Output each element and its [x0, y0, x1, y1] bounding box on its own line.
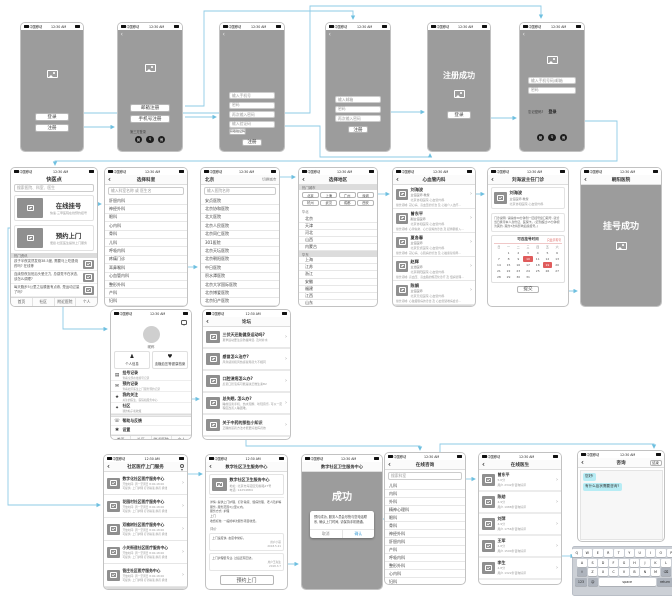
consult-doctor-item[interactable]: 曾东平5.0分用户·2342条咨询好评 ›	[479, 470, 561, 492]
battery-icon	[89, 170, 95, 173]
consult-doctor-item[interactable]: 刘萍4.9分用户·1756条咨询好评 ›	[479, 514, 561, 536]
chevron-right-icon: ›	[182, 503, 184, 509]
battery-icon	[576, 25, 582, 28]
tab-item[interactable]: 个人	[76, 298, 97, 306]
back-icon[interactable]: ‹	[388, 461, 391, 468]
return-key[interactable]: return	[657, 578, 672, 586]
signal-icon	[396, 170, 401, 172]
province-item[interactable]: 河北	[299, 230, 377, 237]
battery-icon	[279, 457, 285, 460]
image-icon	[485, 477, 492, 483]
department-item[interactable]: 呼吸内科	[385, 554, 465, 562]
calendar-day[interactable]: 31	[523, 274, 533, 280]
image-icon	[210, 356, 217, 362]
department-item[interactable]: 耳鼻喉科	[105, 264, 187, 272]
calendar-day[interactable]: 28	[494, 274, 504, 280]
consult-doctor-item[interactable]: 李生4.8分用户·1322条咨询好评 ›	[479, 558, 561, 580]
province-item[interactable]: 安徽	[299, 279, 377, 286]
community-center-item[interactable]: 花园村社区医疗服务中心开放时间: 周一至周日 8:00-18:00可提供: 上门…	[104, 495, 187, 518]
phone-register-button[interactable]: 手机号注册	[130, 115, 170, 123]
login-button[interactable]: 登录	[35, 113, 69, 121]
hospital-item[interactable]: 北京天坛医院	[201, 247, 279, 255]
letter-key[interactable]: O	[656, 549, 666, 557]
emoji-key[interactable]: ☺	[588, 578, 598, 586]
chevron-right-icon: ›	[556, 521, 558, 527]
letter-key[interactable]: M	[651, 568, 661, 576]
consult-doctor-item[interactable]: 王军4.8分用户·1590条咨询好评 ›	[479, 536, 561, 558]
search-input[interactable]: 输入医院名称	[204, 187, 276, 195]
bottom-tab-bar: 首页社区附近医院个人	[111, 435, 191, 439]
letter-key[interactable]: I	[646, 549, 656, 557]
battery-icon	[276, 25, 282, 28]
menu-item[interactable]: ▤ 挂号记录查看全部在线挂号记录	[111, 370, 191, 381]
signal-icon	[209, 457, 214, 459]
hospital-item[interactable]: 中日医院	[201, 264, 279, 272]
password-input[interactable]: 密码	[528, 87, 576, 94]
battery-icon	[75, 25, 81, 28]
back-icon[interactable]: ‹	[302, 176, 305, 183]
status-bar: 中国移动12:30 AM	[21, 23, 83, 30]
messages-icon[interactable]	[181, 320, 187, 325]
post-image-placeholder	[206, 419, 220, 431]
department-item[interactable]: 妇科	[385, 578, 465, 584]
filter-available-link[interactable]: 只显示有号	[547, 238, 561, 242]
image-icon	[110, 572, 117, 578]
profile-menu: ▤ 挂号记录查看全部在线挂号记录 ✉ 预约记录查看社区医生上门服务预约记录 ★ …	[111, 370, 191, 414]
page-title: 咨询	[616, 460, 625, 466]
app-title: 快医点	[11, 175, 97, 184]
success-image-placeholder-icon	[454, 90, 465, 98]
region-group-east-list: 上海江苏浙江安徽福建江西山东	[299, 257, 377, 306]
image-icon	[399, 239, 406, 245]
chevron-right-icon: ›	[470, 263, 472, 269]
review-item: 上门护理很专业, 过后还有回访。 用户王先生2018.3.7	[209, 553, 284, 572]
department-item[interactable]: 骨科	[385, 522, 465, 530]
letter-key[interactable]: D	[598, 559, 608, 567]
signal-icon	[204, 170, 209, 172]
signal-icon	[388, 455, 393, 457]
department-item[interactable]: 神经外科	[385, 530, 465, 538]
screen-doctor-list: 中国移动12:30 AM ‹心血管内科 刘海波主任医师 教授北京协和医院 心血管…	[392, 167, 476, 307]
register-submit-button[interactable]: 注册	[242, 139, 262, 146]
letter-key[interactable]: R	[604, 549, 614, 557]
image-icon	[210, 334, 217, 340]
doctor-photo-placeholder	[482, 496, 495, 508]
department-item[interactable]: 疼痛门诊	[105, 256, 187, 264]
screen-community-success: 中国移动12:30 AM 数字社区卫生服务中心 成功 预约成功, 服务人员会尽快…	[301, 454, 383, 590]
chevron-right-icon: ›	[556, 477, 558, 483]
cancel-button[interactable]: 取消	[310, 530, 342, 538]
menu-item[interactable]: ✉ 预约记录查看社区医生上门服务预约记录	[111, 381, 191, 392]
province-item[interactable]: 江西	[299, 293, 377, 300]
news-item[interactable]: 孩子半夜突然发烧38.5度, 需要马上吃退烧药吗? 在线等	[11, 258, 97, 271]
hospital-list: 安贞医院北京协和医院北大医院北京人民医院北京同仁医院301医院北京天坛医院北京朝…	[201, 197, 279, 306]
menu-item[interactable]: ☏ 帮助与反馈	[111, 417, 191, 426]
chat-bubble: 您好!	[583, 473, 597, 481]
password-input[interactable]: 密码	[335, 106, 381, 113]
department-item[interactable]: 呼吸内科	[105, 247, 187, 255]
doctor-item[interactable]: 刘海波主任医师 教授北京协和医院 心血管内科 › 擅长领域: 冠心病、高血压的诊…	[393, 185, 475, 209]
battery-icon	[553, 455, 559, 458]
letter-key[interactable]: S	[588, 559, 598, 567]
backspace-key[interactable]: ⌫	[661, 568, 671, 576]
search-input[interactable]: 搜索医院、科室、医生	[14, 184, 94, 192]
battery-icon	[467, 170, 473, 173]
screen-signup-success: 中国移动12:30 AM 注册成功 登录	[427, 22, 491, 152]
weibo-icon[interactable]: 博	[560, 134, 568, 142]
letter-key[interactable]: Z	[588, 568, 598, 576]
screen-community-detail: 中国移动12:30 AM ‹数字社区卫生服务中心 数字社区卫生服务中心 地址: …	[205, 454, 288, 590]
department-item[interactable]: 内科	[385, 490, 465, 498]
province-item[interactable]: 浙江	[299, 271, 377, 278]
qq-icon[interactable]: Q	[146, 136, 154, 144]
department-item[interactable]: 神经外科	[105, 205, 187, 213]
confirm-button[interactable]: 确认	[342, 530, 375, 538]
forum-post-item[interactable]: 三伏天还能健身运动吗?夏季运动要注意防暑降温, 及时补水 ›	[203, 327, 290, 349]
hospital-item[interactable]: 积水潭医院	[201, 273, 279, 281]
book-home-visit-button[interactable]: 预约上门	[220, 575, 274, 585]
department-item[interactable]: 心血管内科	[105, 273, 187, 281]
forum-post-item[interactable]: 口腔溃疡怎么办?反复口腔溃疡可能是缺乏维生素B2 ›	[203, 371, 290, 393]
review-item: 上门速度快, 态度非常好。 用户小丽2018.5.21	[209, 533, 284, 552]
tab-item[interactable]: 首页	[111, 436, 131, 439]
news-item[interactable]: 每天跑步5公里之后膝盖有点疼, 是运动过量了吗?	[11, 284, 97, 297]
back-icon[interactable]: ‹	[223, 32, 225, 38]
search-input[interactable]: 搜索科室	[388, 472, 462, 480]
card-image-placeholder	[17, 198, 43, 218]
doctor-item[interactable]: 陈娟主任医师北京天坛医院 心血管内科 › 擅长领域: 心脏瓣膜病的诊治 及 心血…	[393, 281, 475, 305]
home-feature-card[interactable]: 预约上门便捷·社区医生提供上门服务	[14, 225, 94, 251]
signal-icon	[114, 312, 119, 314]
avatar[interactable]	[143, 326, 160, 343]
center-detail-text: 详情: 提供上门护理、打针输液、慢病管理、老人陪护等服务, 服务范围3公里以内。…	[209, 497, 284, 525]
community-center-item[interactable]: 小关街道社区医疗服务中心开放时间: 周一至周日 8:00-18:00可提供: 上…	[104, 541, 187, 564]
post-image-placeholder	[206, 397, 220, 409]
signal-icon	[523, 25, 528, 27]
hot-city-button[interactable]: 广州	[339, 192, 356, 198]
menu-item[interactable]: ✱ 设置	[111, 426, 191, 435]
chevron-right-icon: ›	[470, 239, 472, 245]
hospital-item[interactable]: 北京妇产医院	[201, 298, 279, 306]
register-submit-button[interactable]: 注册	[348, 126, 368, 133]
hot-city-button[interactable]: 深圳	[357, 192, 374, 198]
space-key[interactable]: space	[599, 578, 657, 586]
submit-button[interactable]: 提交	[517, 286, 539, 293]
screen-signup-phone: 中国移动12:30 AM ‹ 输入手机号 密码 再次输入密码 输入验证码 获取验…	[219, 22, 285, 152]
letter-key[interactable]: X	[598, 568, 608, 576]
news-image-placeholder	[83, 273, 94, 282]
profile-card[interactable]: ♟ 个人信息	[114, 351, 150, 369]
hot-cities-header: 热门城市	[299, 185, 377, 190]
department-item[interactable]: 眼科	[385, 514, 465, 522]
back-icon[interactable]: ‹	[491, 176, 494, 183]
shift-key[interactable]: ⇧	[577, 568, 587, 576]
wechat-icon[interactable]: 微	[135, 136, 143, 144]
image-icon	[399, 287, 406, 293]
hospital-item[interactable]: 北大医院	[201, 214, 279, 222]
battery-icon	[174, 25, 180, 28]
end-chat-button[interactable]: 结束	[650, 460, 662, 466]
back-icon[interactable]: ‹	[209, 463, 212, 470]
numbers-key[interactable]: 123	[575, 578, 587, 586]
menu-icon: ✉	[114, 384, 120, 389]
back-icon[interactable]: ‹	[396, 176, 399, 183]
calendar-day[interactable]: 29	[504, 274, 514, 280]
chevron-right-icon: ›	[182, 480, 184, 486]
home-feature-card[interactable]: 在线挂号快速·三甲医院在线预约挂号	[14, 195, 94, 221]
department-item[interactable]: 肝胆内科	[385, 538, 465, 546]
email-register-button[interactable]: 邮箱注册	[130, 104, 170, 112]
department-item[interactable]: 外科	[385, 498, 465, 506]
login-button[interactable]: 登录	[447, 111, 471, 119]
back-icon[interactable]: ‹	[121, 32, 123, 38]
province-item[interactable]: 山东	[299, 300, 377, 306]
department-item[interactable]: 精神心理科	[385, 506, 465, 514]
search-input[interactable]: 输入科室名称 或 医生名	[108, 187, 184, 195]
community-center-list: 数字化社区医疗服务中心开放时间: 周一至周日 8:00-18:00可提供: 上门…	[104, 472, 187, 587]
nickname-label: 昵称	[148, 344, 155, 349]
letter-key[interactable]: N	[640, 568, 650, 576]
battery-icon	[560, 170, 566, 173]
booking-success-message: 挂号成功	[603, 219, 639, 232]
hot-city-button[interactable]: 成都	[339, 200, 356, 206]
back-icon[interactable]: ‹	[206, 318, 209, 325]
signal-icon	[581, 453, 586, 455]
province-item[interactable]: 内蒙古	[299, 244, 377, 251]
verify-code-input[interactable]: 输入验证码	[229, 121, 275, 128]
chat-bubble: 有什么症状需要咨询?	[583, 483, 622, 491]
center-phone: 电话: 14254884	[230, 488, 272, 492]
wechat-icon[interactable]: 微	[537, 134, 545, 142]
calendar-days: 1234567891011121314151617181920212223242…	[494, 250, 562, 281]
community-center-item[interactable]: 管庄社区医疗服务中心开放时间: 周一至周日 8:00-18:00可提供: 上门护…	[104, 564, 187, 587]
letter-key[interactable]: F	[609, 559, 619, 567]
province-item[interactable]: 天津	[299, 223, 377, 230]
department-item[interactable]: 眼科	[105, 214, 187, 222]
back-icon[interactable]: ‹	[108, 176, 111, 183]
menu-icon: ☏	[114, 419, 120, 424]
profile-card[interactable]: ♥ 血糖血压等健康档案	[152, 351, 188, 369]
image-icon	[210, 400, 217, 406]
password-input[interactable]: 密码	[229, 102, 275, 109]
doctor-item[interactable]: 夏各春主任医师北京安贞医院 心血管内科 › 擅长领域: 冠心病、心肌病的诊治 及…	[393, 233, 475, 257]
back-icon[interactable]: ‹	[482, 461, 485, 468]
battery-icon	[183, 312, 189, 315]
signal-icon	[206, 312, 211, 314]
image-icon	[399, 191, 406, 197]
letter-key[interactable]: K	[651, 559, 661, 567]
screen-home: 中国移动12:30 AM 快医点 搜索医院、科室、医生 在线挂号快速·三甲医院在…	[10, 167, 98, 307]
hospital-item[interactable]: 北京协和医院	[201, 205, 279, 213]
letter-key[interactable]: C	[609, 568, 619, 576]
letter-key[interactable]: P	[667, 549, 672, 557]
keyboard-row-3: ⇧ ZXCVBNM ⌫	[575, 568, 672, 576]
hospital-item[interactable]: 北京博爱医院	[201, 289, 279, 297]
center-card: 数字社区卫生服务中心 地址: 北京市海淀区知春路27号 电话: 14254884	[209, 474, 284, 495]
keyboard-row-1: QWERTYUIOP	[575, 549, 672, 557]
tab-item[interactable]: 个人	[172, 436, 191, 439]
community-center-item[interactable]: 数字化社区医疗服务中心开放时间: 周一至周日 8:00-18:00可提供: 上门…	[104, 472, 187, 495]
get-code-button[interactable]: 获取验证码	[229, 128, 246, 135]
department-item[interactable]: 妇科	[105, 298, 187, 306]
post-image-placeholder	[206, 375, 220, 387]
department-item[interactable]: 整形外科	[105, 281, 187, 289]
calendar-day[interactable]: 25	[533, 268, 543, 274]
hospital-item[interactable]: 北京朝阳医院	[201, 256, 279, 264]
department-item[interactable]: 产科	[385, 546, 465, 554]
consult-department-list: 儿科内科外科精神心理科眼科骨科神经外科肝胆内科产科呼吸内科整形外科心内科妇科	[385, 482, 465, 584]
page-title: 在线医生	[511, 462, 529, 468]
forgot-password-link[interactable]: 忘记密码?	[528, 110, 543, 114]
hospital-item[interactable]: 安贞医院	[201, 197, 279, 205]
department-item[interactable]: 骨科	[105, 231, 187, 239]
tab-item[interactable]: 首页	[11, 298, 33, 306]
department-item[interactable]: 儿科	[105, 239, 187, 247]
hospital-item[interactable]: 北京大学国际医院	[201, 281, 279, 289]
signal-icon	[305, 457, 310, 459]
screen-consult-departments: 中国移动12:30 AM ‹在线咨询 搜索科室 儿科内科外科精神心理科眼科骨科神…	[384, 452, 466, 585]
back-icon[interactable]: ‹	[581, 459, 584, 466]
doctor-item[interactable]: 曾东平副主任医师北京协和医院 心血管内科 › 擅长领域: 心律失常、心力衰竭的诊…	[393, 209, 475, 233]
forum-post-item[interactable]: 感冒怎么治疗?风寒感冒和风热感冒用药大不相同 ›	[203, 349, 290, 371]
image-icon	[110, 480, 117, 486]
letter-key[interactable]: Y	[625, 549, 635, 557]
letter-key[interactable]: V	[619, 568, 629, 576]
letter-key[interactable]: G	[619, 559, 629, 567]
hospital-item[interactable]: 301医院	[201, 239, 279, 247]
home-cards: 在线挂号快速·三甲医院在线预约挂号 预约上门便捷·社区医生提供上门服务	[11, 193, 97, 253]
password-confirm-input[interactable]: 再次输入密码	[335, 115, 381, 122]
login-submit-link[interactable]: 登录	[548, 109, 556, 114]
confirm-dialog: 预约成功, 服务人员会尽快与您电话联系, 确认上门时间, 请保持手机畅通。 取消…	[310, 511, 374, 538]
department-item[interactable]: 儿科	[385, 482, 465, 490]
hospital-item[interactable]: 北京人民医院	[201, 222, 279, 230]
email-input[interactable]: 输入邮箱	[335, 96, 381, 103]
hot-city-button[interactable]: 上海	[320, 192, 337, 198]
current-city-label[interactable]: 北京	[205, 177, 214, 183]
letter-key[interactable]: J	[640, 559, 650, 567]
tab-item[interactable]: 附近医院	[55, 298, 77, 306]
screen-choose-region: 中国移动12:30 AM ‹选择地区 热门城市 北京上海广州深圳杭州武汉成都西安…	[298, 167, 378, 307]
back-icon[interactable]: ‹	[523, 32, 525, 38]
menu-item[interactable]: ✦ 社区我的帖子和收藏	[111, 403, 191, 414]
calendar-day[interactable]: 27	[552, 268, 562, 274]
account-input[interactable]: 输入手机号码/邮箱	[528, 77, 576, 84]
back-icon[interactable]: ‹	[107, 463, 110, 470]
chevron-right-icon: ›	[470, 191, 472, 197]
location-pin-icon[interactable]	[180, 464, 184, 468]
tab-item[interactable]: 社区	[131, 436, 151, 439]
menu-item[interactable]: ★ 我的关注关注的医生、医院和服务中心	[111, 392, 191, 403]
letter-key[interactable]: A	[577, 559, 587, 567]
letter-key[interactable]: U	[635, 549, 645, 557]
consult-doctor-item[interactable]: 陈勋4.9分用户·1988条咨询好评 ›	[479, 492, 561, 514]
image-icon	[110, 503, 117, 509]
image-icon	[85, 287, 92, 293]
profile-cards: ♟ 个人信息 ♥ 血糖血压等健康档案	[113, 350, 189, 370]
page-title: 在线咨询	[416, 462, 434, 468]
weibo-icon[interactable]: 博	[158, 136, 166, 144]
community-center-item[interactable]: 双榆树社区医疗服务中心开放时间: 周一至周日 8:00-18:00可提供: 上门…	[104, 518, 187, 541]
register-button[interactable]: 注册	[35, 124, 69, 132]
letter-key[interactable]: T	[614, 549, 624, 557]
image-icon	[27, 205, 34, 211]
department-item[interactable]: 肝胆内科	[105, 197, 187, 205]
department-item[interactable]: 整形外科	[385, 562, 465, 570]
calendar-day[interactable]: 26	[543, 268, 553, 274]
department-item[interactable]: 心内科	[105, 222, 187, 230]
tab-item[interactable]: 附近医院	[152, 436, 172, 439]
hot-city-buttons: 北京上海广州深圳杭州武汉成都西安	[302, 192, 374, 206]
battery-icon	[374, 457, 380, 460]
battery-icon	[282, 312, 288, 315]
phone-input[interactable]: 输入手机号	[229, 92, 275, 99]
chevron-right-icon: ›	[556, 499, 558, 505]
department-item[interactable]: 心内科	[385, 570, 465, 578]
center-image-placeholder	[107, 570, 120, 581]
switch-city-link[interactable]: 切换城市	[262, 177, 276, 182]
hospital-item[interactable]: 北京同仁医院	[201, 231, 279, 239]
signal-icon	[223, 25, 228, 27]
page-title: 社区医疗上门服务	[127, 464, 164, 470]
chevron-right-icon: ›	[470, 215, 472, 221]
image-icon	[27, 235, 34, 241]
forum-post-item[interactable]: 关于中药的那些小知识正确的煎药方法才能更好发挥药效 ›	[203, 415, 290, 437]
doctor-item[interactable]: 赵辉主治医师北京朝阳医院 心血管内科 › 擅长领域: 高血压、高血脂的规范化诊疗…	[393, 257, 475, 281]
page-title: 选择地区	[329, 177, 347, 183]
doctor-photo-placeholder	[494, 192, 507, 204]
battery-icon	[457, 455, 463, 458]
back-icon[interactable]: ‹	[329, 32, 331, 38]
hot-city-button[interactable]: 西安	[357, 200, 374, 206]
letter-key[interactable]: H	[630, 559, 640, 567]
letter-key[interactable]: L	[661, 559, 671, 567]
center-image-placeholder	[107, 547, 120, 558]
letter-key[interactable]: E	[593, 549, 603, 557]
hot-city-button[interactable]: 北京	[302, 192, 319, 198]
department-item[interactable]: 产科	[105, 289, 187, 297]
image-icon	[399, 263, 406, 269]
password-confirm-input[interactable]: 再次输入密码	[229, 111, 275, 118]
doctor-photo-placeholder	[482, 562, 495, 574]
letter-key[interactable]: Q	[572, 549, 582, 557]
image-icon	[485, 521, 492, 527]
calendar-day[interactable]: 3	[523, 250, 533, 256]
battery-icon	[382, 25, 388, 28]
doctor-photo-placeholder	[396, 189, 408, 200]
hot-city-button[interactable]: 武汉	[320, 200, 337, 206]
province-item[interactable]: 福建	[299, 286, 377, 293]
province-item[interactable]: 北京	[299, 216, 377, 223]
center-image-placeholder	[212, 478, 227, 491]
qq-icon[interactable]: Q	[548, 134, 556, 142]
back-icon[interactable]: ‹	[584, 176, 587, 183]
signal-icon	[108, 170, 113, 172]
news-item[interactable]: 连续熬夜加班后头晕乏力, 总感觉不在状态, 该怎么调理?	[11, 271, 97, 284]
calendar-day[interactable]: 30	[513, 274, 523, 280]
letter-key[interactable]: B	[630, 568, 640, 576]
news-image-placeholder	[83, 260, 94, 269]
image-icon	[216, 482, 223, 488]
card-icon: ♟	[130, 354, 135, 360]
chevron-right-icon: ›	[470, 287, 472, 293]
tab-item[interactable]: 社区	[33, 298, 55, 306]
forum-post-item[interactable]: 总失眠, 怎么办?睡前远离手机、热水泡脚、听轻音乐, 可以一定程度改善入睡困难。…	[203, 393, 290, 415]
battery-icon	[271, 170, 277, 173]
hot-city-button[interactable]: 杭州	[302, 200, 319, 206]
letter-key[interactable]: W	[583, 549, 593, 557]
screen-community-list: 中国移动12:30 AM ‹社区医疗上门服务 数字化社区医疗服务中心开放时间: …	[103, 454, 188, 590]
